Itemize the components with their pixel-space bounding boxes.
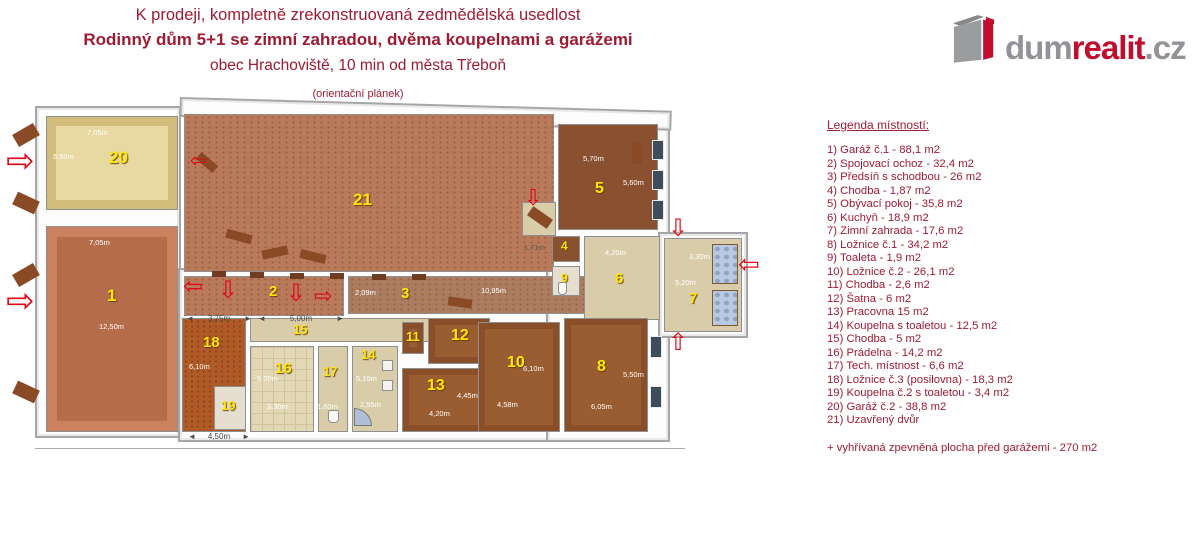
room-number-label: 11	[406, 330, 420, 343]
exterior-dimension-label: ◄4,50m►	[188, 433, 250, 441]
dimension-arrow: ►	[336, 315, 344, 323]
dimension-label: 12,50m	[99, 323, 124, 331]
ground-line	[35, 448, 685, 449]
room-5: 55,70m5,60m	[558, 124, 658, 230]
entrance-arrow-icon: ⇩	[524, 188, 542, 210]
room-21: 21	[184, 114, 554, 272]
dimension-arrow: 3,75m	[208, 315, 230, 323]
room-number-label: 15	[293, 323, 307, 336]
room-number-label: 20	[109, 149, 128, 166]
room-4: 4	[552, 236, 580, 262]
fixture-icon	[382, 360, 393, 371]
planter-icon	[250, 272, 264, 278]
entrance-arrow-icon: ⇩	[286, 281, 306, 305]
room-number-label: 21	[353, 191, 372, 208]
dimension-label: 4,20m	[605, 249, 626, 257]
dimension-label: 4,45m	[457, 392, 478, 400]
window-icon	[652, 140, 664, 160]
room-20: 207,05m5,50m	[46, 116, 178, 210]
room-16: 165,00m3,30m	[250, 346, 314, 432]
entrance-arrow-icon: ⇩	[218, 278, 238, 302]
dimension-label: 5,60m	[623, 179, 644, 187]
room-number-label: 19	[221, 399, 235, 412]
room-11: 11	[402, 322, 424, 354]
room-19: 19	[214, 386, 246, 430]
entrance-arrow-icon: ⇨	[6, 144, 35, 178]
winter-garden-glass	[712, 290, 738, 326]
room-8: 85,50m6,05m	[564, 318, 648, 432]
entrance-arrow-icon: ⇦	[738, 252, 760, 278]
room-number-label: 2	[269, 284, 277, 299]
dimension-arrow: ►	[244, 315, 252, 323]
room-number-label: 7	[689, 291, 697, 306]
dimension-arrow: ◄	[186, 315, 194, 323]
entrance-arrow-icon: ⇩	[668, 216, 688, 240]
entrance-arrow-icon: ⇧	[668, 330, 688, 354]
dimension-label: 5,50m	[53, 153, 74, 161]
dimension-label: 7,05m	[87, 129, 108, 137]
room-number-label: 12	[451, 328, 469, 344]
dimension-arrow: ◄	[258, 315, 266, 323]
dimension-label: 5,20m	[675, 279, 696, 287]
exterior-dimension-label: ◄3,75m►	[186, 315, 252, 323]
window-icon	[650, 336, 662, 358]
entrance-arrow-icon: ⇦	[183, 274, 203, 298]
room-number-label: 5	[595, 181, 604, 197]
room-6: 64,20m	[584, 236, 660, 320]
dimension-label: 3,30m	[267, 403, 288, 411]
dimension-label: 1,71m	[524, 244, 545, 252]
toilet-icon	[328, 410, 339, 423]
real-estate-floorplan-page: K prodeji, kompletně zrekonstruovaná zed…	[0, 0, 1200, 539]
dimension-label: 3,30m	[689, 253, 710, 261]
dimension-label: 5,50m	[623, 371, 644, 379]
room-number-label: 1	[107, 287, 116, 304]
room-1: 17,05m12,50m	[46, 226, 178, 432]
entrance-arrow-icon: ⇦	[190, 150, 207, 170]
room-number-label: 8	[597, 359, 606, 375]
door-leaf-icon	[632, 142, 642, 164]
dimension-arrow: ►	[242, 433, 250, 441]
room-number-label: 17	[323, 365, 337, 378]
dimension-arrow: 4,50m	[208, 433, 230, 441]
dimension-label: 5,10m	[356, 375, 377, 383]
room-number-label: 14	[361, 348, 375, 361]
dimension-label: 4,20m	[429, 410, 450, 418]
entrance-arrow-icon: ⇨	[314, 286, 332, 308]
dimension-label: 2,09m	[355, 289, 376, 297]
dimension-label: 5,70m	[583, 155, 604, 163]
dimension-label: 6,05m	[591, 403, 612, 411]
floor-plan: dumrealit.cz 207,05m5,50m17,05m12,50m212…	[0, 0, 1200, 539]
window-icon	[652, 170, 664, 190]
dimension-arrow: ◄	[188, 433, 196, 441]
entrance-arrow-icon: ⇨	[6, 284, 35, 318]
planter-icon	[330, 273, 344, 279]
window-icon	[652, 200, 664, 220]
dimension-label: 7,05m	[89, 239, 110, 247]
dimension-label: 2,55m	[360, 401, 381, 409]
room-number-label: 3	[401, 286, 409, 301]
dimension-arrow: 5,00m	[290, 315, 312, 323]
dimension-label: 4,58m	[497, 401, 518, 409]
planter-icon	[412, 274, 426, 280]
dimension-label: 5,00m	[257, 375, 278, 383]
planter-icon	[372, 274, 386, 280]
room-13: 134,45m4,20m	[402, 368, 490, 432]
exterior-dimension-label: ◄5,00m►	[258, 315, 344, 323]
room-number-label: 6	[615, 271, 623, 286]
room-number-label: 18	[203, 335, 220, 350]
dimension-label: 6,10m	[189, 363, 210, 371]
fixture-icon	[382, 380, 393, 391]
dimension-label: 6,10m	[523, 365, 544, 373]
room-10: 106,10m4,58m	[478, 322, 560, 432]
toilet-icon	[558, 282, 567, 295]
room-number-label: 13	[427, 378, 445, 394]
room-number-label: 4	[561, 240, 568, 252]
window-icon	[650, 386, 662, 408]
dimension-label: 10,95m	[481, 287, 506, 295]
winter-garden-glass	[712, 244, 738, 284]
